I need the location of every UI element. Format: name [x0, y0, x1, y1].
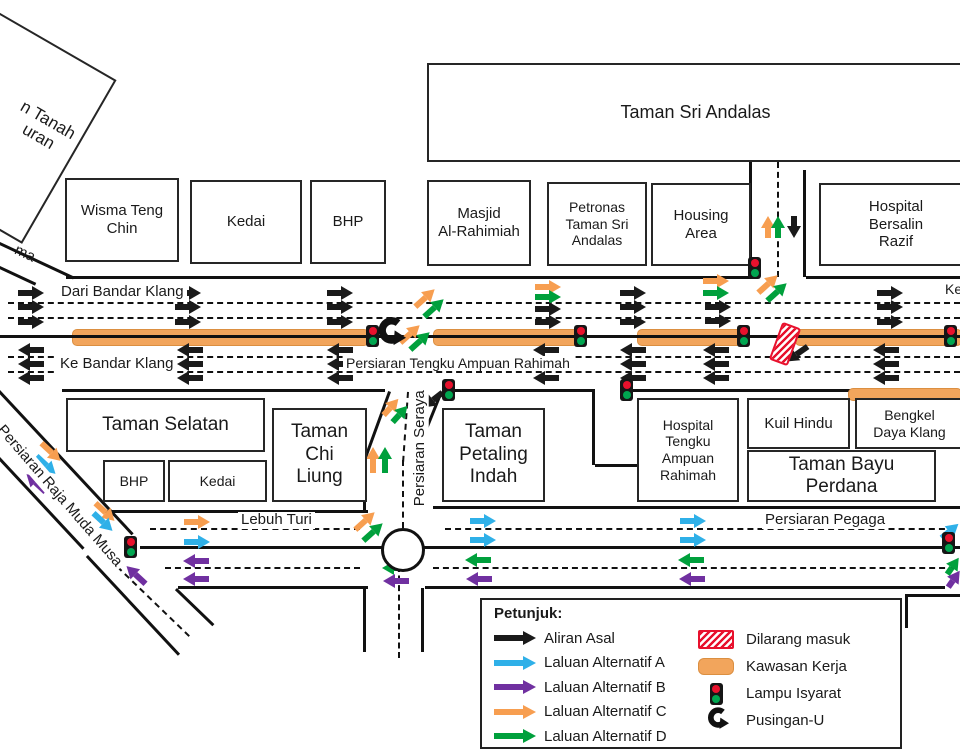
- arrow-shaft: [620, 304, 634, 310]
- building-housing-area: Housing Area: [651, 183, 751, 266]
- legend-flow-row: Laluan Alternatif D: [492, 724, 667, 749]
- legend-uturn-icon: [694, 708, 738, 734]
- flow-arrow-alternatif-a: [494, 655, 536, 671]
- arrow-head: [32, 300, 44, 314]
- traffic-light-icon: [442, 379, 455, 401]
- building-label: Taman Chi Liung: [291, 421, 348, 488]
- road-line: [595, 464, 637, 467]
- arrow-shaft: [632, 375, 646, 381]
- legend-flow-label: Laluan Alternatif A: [544, 654, 665, 671]
- arrow-shaft: [885, 361, 899, 367]
- legend-noentry-icon: [694, 627, 738, 653]
- arrow-shaft: [339, 375, 353, 381]
- building-label: Masjid Al-Rahimiah: [438, 205, 520, 240]
- arrow-shaft: [703, 290, 717, 296]
- flow-arrow-alternatif-c: [184, 514, 210, 530]
- flow-arrow-alternatif-d: [678, 552, 704, 568]
- legend-kawasan-icon: [694, 654, 738, 680]
- flow-arrow-alternatif-a: [470, 532, 496, 548]
- flow-arrow-aliran-asal: [327, 299, 353, 315]
- building-taman-sri-andalas: Taman Sri Andalas: [427, 63, 960, 162]
- arrow-shaft: [327, 304, 341, 310]
- road-line: [364, 588, 367, 652]
- flow-arrow-aliran-asal: [18, 370, 44, 386]
- road-line: [102, 510, 368, 513]
- arrow-shaft: [30, 347, 44, 353]
- flow-arrow-alternatif-b: [679, 571, 705, 587]
- building-label: BHP: [333, 213, 364, 231]
- building-hospital-bersalin-razif: Hospital Bersalin Razif: [819, 183, 960, 266]
- arrow-shaft: [30, 361, 44, 367]
- traffic-light-icon: [748, 257, 761, 279]
- road-label-lebuh-turi: Lebuh Turi: [238, 512, 315, 529]
- arrow-head: [18, 357, 30, 371]
- flow-arrow-aliran-asal: [535, 314, 561, 330]
- arrow-head: [873, 371, 885, 385]
- arrow-shaft: [885, 375, 899, 381]
- arrow-head: [873, 357, 885, 371]
- legend-box: Petunjuk: Aliran AsalLaluan Alternatif A…: [480, 598, 902, 749]
- arrow-head: [523, 680, 536, 694]
- arrow-shaft: [703, 278, 717, 284]
- traffic-light-icon: [710, 683, 723, 705]
- flow-arrow-aliran-asal: [620, 314, 646, 330]
- flow-arrow-aliran-asal: [327, 370, 353, 386]
- arrow-head: [465, 553, 477, 567]
- arrow-head: [533, 371, 545, 385]
- building-label: Taman Sri Andalas: [620, 102, 770, 123]
- arrow-head: [189, 315, 201, 329]
- legend-symbol-label: Pusingan-U: [746, 712, 824, 729]
- arrow-head: [523, 631, 536, 645]
- arrow-shaft: [877, 304, 891, 310]
- building-label: Housing Area: [673, 207, 728, 242]
- arrow-head: [694, 514, 706, 528]
- arrow-shaft: [705, 318, 719, 324]
- legend-symbol-row: Lampu Isyarat: [694, 680, 850, 707]
- building-taman-petaling-indah: Taman Petaling Indah: [442, 408, 545, 502]
- building-kuil-hindu: Kuil Hindu: [747, 398, 850, 449]
- no-entry-swatch: [698, 630, 734, 649]
- arrow-head: [523, 705, 536, 719]
- building-label: Wisma Teng Chin: [81, 202, 163, 237]
- legend-symbol-label: Kawasan Kerja: [746, 658, 847, 675]
- flow-arrow-alternatif-b: [183, 553, 209, 569]
- arrow-shaft: [189, 361, 203, 367]
- arrow-head: [177, 343, 189, 357]
- arrow-shaft: [370, 459, 376, 473]
- flow-arrow-alternatif-b: [494, 679, 536, 695]
- road-label-ke-fragment: Ke: [942, 282, 960, 297]
- arrow-shaft: [690, 557, 704, 563]
- traffic-light-icon: [942, 532, 955, 554]
- arrow-head: [198, 535, 210, 549]
- legend-flow-label: Laluan Alternatif D: [544, 728, 667, 745]
- arrow-shaft: [189, 347, 203, 353]
- flow-arrow-aliran-asal: [175, 299, 201, 315]
- flow-arrow-alternatif-b: [383, 573, 409, 589]
- arrow-head: [719, 314, 731, 328]
- road-line: [593, 390, 596, 465]
- road-line: [0, 335, 960, 338]
- arrow-head: [703, 371, 715, 385]
- flow-arrow-aliran-asal: [703, 370, 729, 386]
- road-line: [806, 276, 960, 279]
- road-label-dari-bandar-klang: Dari Bandar Klang: [58, 284, 187, 301]
- arrow-head: [183, 554, 195, 568]
- building-label: Petronas Taman Sri Andalas: [565, 199, 628, 249]
- flow-arrow-aliran-asal: [175, 314, 201, 330]
- legend-flow-row: Laluan Alternatif A: [492, 651, 667, 676]
- road-label-persiaran-pegaga: Persiaran Pegaga: [762, 512, 888, 529]
- arrow-head: [549, 315, 561, 329]
- flow-arrow-alternatif-c: [494, 704, 536, 720]
- building-label: Hospital Bersalin Razif: [869, 198, 923, 251]
- road-line: [62, 389, 385, 392]
- traffic-light-icon: [737, 325, 750, 347]
- arrow-head: [873, 343, 885, 357]
- flow-arrow-aliran-asal: [18, 299, 44, 315]
- road-line: [804, 170, 807, 277]
- flow-arrow-alternatif-d: [770, 216, 786, 238]
- arrow-head: [678, 553, 690, 567]
- arrow-head: [703, 357, 715, 371]
- building-taman-bayu-perdana: Taman Bayu Perdana: [747, 450, 936, 502]
- arrow-shaft: [175, 319, 189, 325]
- legend-flow-row: Aliran Asal: [492, 626, 667, 651]
- legend-symbol-row: Kawasan Kerja: [694, 653, 850, 680]
- arrow-head: [327, 357, 339, 371]
- arrow-shaft: [18, 304, 32, 310]
- arrow-shaft: [535, 294, 549, 300]
- road-line: [906, 594, 909, 628]
- legend-symbol-label: Lampu Isyarat: [746, 685, 841, 702]
- arrow-head: [378, 447, 392, 459]
- road-line: [8, 302, 960, 304]
- arrow-shaft: [478, 576, 492, 582]
- arrow-shaft: [327, 319, 341, 325]
- roundabout-circle: [381, 528, 425, 572]
- road-line: [402, 460, 404, 528]
- arrow-shaft: [691, 576, 705, 582]
- flow-arrow-alternatif-d: [465, 552, 491, 568]
- arrow-head: [891, 315, 903, 329]
- arrow-head: [679, 572, 691, 586]
- legend-flow-row: Laluan Alternatif C: [492, 700, 667, 725]
- arrow-shaft: [545, 375, 559, 381]
- arrow-shaft: [494, 635, 523, 641]
- arrow-head: [719, 300, 731, 314]
- arrow-shaft: [477, 557, 491, 563]
- arrow-head: [523, 656, 536, 670]
- building-taman-selatan: Taman Selatan: [66, 398, 265, 452]
- arrow-shaft: [470, 518, 484, 524]
- flow-arrow-alternatif-b: [183, 571, 209, 587]
- flow-arrow-aliran-asal: [18, 314, 44, 330]
- arrow-head: [32, 286, 44, 300]
- arrow-shaft: [632, 347, 646, 353]
- arrow-head: [703, 343, 715, 357]
- arrow-head: [189, 300, 201, 314]
- road-label-persiaran-seraya: Persiaran Seraya: [412, 380, 429, 516]
- arrow-shaft: [395, 578, 409, 584]
- arrow-shaft: [877, 290, 891, 296]
- legend-flow-column: Aliran AsalLaluan Alternatif ALaluan Alt…: [492, 626, 667, 749]
- flow-arrow-aliran-asal: [177, 370, 203, 386]
- arrow-head: [183, 572, 195, 586]
- arrow-shaft: [877, 319, 891, 325]
- arrow-head: [341, 315, 353, 329]
- flow-arrow-aliran-asal: [877, 314, 903, 330]
- u-turn-icon: [372, 314, 406, 353]
- arrow-head: [523, 729, 536, 743]
- building-label: Kuil Hindu: [764, 415, 832, 433]
- flow-arrow-alternatif-d: [377, 447, 393, 473]
- arrow-shaft: [494, 684, 523, 690]
- building-label: Bengkel Daya Klang: [873, 407, 945, 440]
- building-hospital-tengku-ampuan-rahimah: Hospital Tengku Ampuan Rahimah: [637, 398, 739, 502]
- flow-arrow-aliran-asal: [533, 370, 559, 386]
- arrow-shaft: [632, 361, 646, 367]
- arrow-head: [694, 533, 706, 547]
- flow-arrow-alternatif-b: [121, 560, 151, 589]
- legend-arrow-icon: [492, 726, 544, 746]
- flow-arrow-aliran-asal: [327, 314, 353, 330]
- arrow-head: [341, 300, 353, 314]
- flow-arrow-aliran-asal: [620, 299, 646, 315]
- arrow-head: [327, 343, 339, 357]
- arrow-head: [634, 300, 646, 314]
- arrow-shaft: [535, 319, 549, 325]
- arrow-head: [484, 533, 496, 547]
- arrow-head: [787, 226, 801, 238]
- flow-arrow-aliran-asal: [494, 630, 536, 646]
- arrow-shaft: [184, 539, 198, 545]
- arrow-shaft: [382, 459, 388, 473]
- building-kedai-south: Kedai: [168, 460, 267, 502]
- building-label: Taman Bayu Perdana: [789, 454, 895, 499]
- arrow-shaft: [494, 709, 523, 715]
- arrow-head: [484, 514, 496, 528]
- building-wisma-teng-chin: Wisma Teng Chin: [65, 178, 179, 262]
- arrow-shaft: [620, 319, 634, 325]
- building-kedai-north: Kedai: [190, 180, 302, 264]
- building-taman-chi-liung: Taman Chi Liung: [272, 408, 367, 502]
- building-petronas-taman-sri-andalas: Petronas Taman Sri Andalas: [547, 182, 647, 266]
- arrow-head: [634, 286, 646, 300]
- traffic-light-icon: [574, 325, 587, 347]
- arrow-head: [771, 216, 785, 228]
- road-line: [175, 588, 214, 626]
- flow-arrow-aliran-asal: [786, 216, 802, 238]
- flow-arrow-aliran-asal: [877, 299, 903, 315]
- arrow-head: [177, 371, 189, 385]
- arrow-shaft: [339, 347, 353, 353]
- building-label: BHP: [120, 473, 149, 490]
- legend-symbol-row: Dilarang masuk: [694, 626, 850, 653]
- legend-flow-label: Laluan Alternatif C: [544, 703, 667, 720]
- arrow-head: [341, 286, 353, 300]
- arrow-head: [717, 286, 729, 300]
- traffic-light-icon: [620, 379, 633, 401]
- arrow-shaft: [680, 537, 694, 543]
- building-label: Kedai: [200, 473, 236, 490]
- arrow-head: [18, 343, 30, 357]
- arrow-shaft: [494, 660, 523, 666]
- road-line: [0, 266, 36, 285]
- arrow-head: [891, 286, 903, 300]
- arrow-shaft: [184, 519, 198, 525]
- road-line: [422, 588, 425, 652]
- road-line: [908, 594, 960, 597]
- road-line: [445, 389, 595, 392]
- arrow-head: [327, 371, 339, 385]
- building-label: Taman Selatan: [102, 414, 229, 436]
- arrow-shaft: [494, 733, 523, 739]
- arrow-head: [620, 343, 632, 357]
- arrow-shaft: [680, 518, 694, 524]
- legend-title: Petunjuk:: [494, 605, 562, 622]
- traffic-diversion-map: Dari Bandar KlangKe Bandar KlangPersiara…: [0, 0, 960, 750]
- work-zone-bar: [72, 329, 369, 346]
- legend-flow-row: Laluan Alternatif B: [492, 675, 667, 700]
- work-zone-swatch: [698, 658, 734, 675]
- building-bengkel-daya-klang: Bengkel Daya Klang: [855, 398, 960, 449]
- building-bhp-south: BHP: [103, 460, 165, 502]
- road-line: [140, 546, 383, 549]
- arrow-head: [198, 515, 210, 529]
- arrow-shaft: [715, 361, 729, 367]
- arrow-shaft: [18, 319, 32, 325]
- arrow-head: [466, 572, 478, 586]
- legend-light-icon: [694, 681, 738, 707]
- building-label: Taman Petaling Indah: [459, 421, 528, 488]
- arrow-head: [18, 371, 30, 385]
- arrow-shaft: [189, 375, 203, 381]
- u-turn-icon: [703, 705, 729, 736]
- road-label-persiaran-tengku-ampuan-rahimah: Persiaran Tengku Ampuan Rahimah: [343, 356, 573, 371]
- arrow-head: [620, 357, 632, 371]
- building-bhp-north: BHP: [310, 180, 386, 264]
- arrow-shaft: [535, 306, 549, 312]
- road-label-road-name-fragment-ma: ma: [9, 241, 40, 267]
- road-line: [66, 276, 752, 279]
- arrow-shaft: [715, 347, 729, 353]
- building-masjid-al-rahimiah: Masjid Al-Rahimiah: [427, 180, 531, 266]
- legend-arrow-icon: [492, 677, 544, 697]
- arrow-shaft: [791, 216, 797, 226]
- arrow-head: [177, 357, 189, 371]
- arrow-shaft: [705, 304, 719, 310]
- arrow-head: [891, 300, 903, 314]
- traffic-light-icon: [124, 536, 137, 558]
- building-label: Kedai: [227, 213, 265, 231]
- road-line: [8, 317, 960, 319]
- arrow-head: [32, 315, 44, 329]
- arrow-head: [383, 574, 395, 588]
- arrow-shaft: [545, 347, 559, 353]
- flow-arrow-aliran-asal: [873, 370, 899, 386]
- traffic-light-icon: [944, 325, 957, 347]
- flow-arrow-aliran-asal: [705, 313, 731, 329]
- arrow-head: [189, 286, 201, 300]
- arrow-shaft: [327, 290, 341, 296]
- arrow-shaft: [18, 290, 32, 296]
- flow-arrow-alternatif-a: [184, 534, 210, 550]
- arrow-head: [634, 315, 646, 329]
- flow-arrow-alternatif-a: [680, 532, 706, 548]
- building-label: Hospital Tengku Ampuan Rahimah: [660, 417, 716, 483]
- arrow-shaft: [470, 537, 484, 543]
- flow-arrow-alternatif-d: [494, 728, 536, 744]
- legend-arrow-icon: [492, 653, 544, 673]
- road-line: [433, 506, 960, 509]
- arrow-shaft: [775, 228, 781, 238]
- legend-arrow-icon: [492, 628, 544, 648]
- arrow-shaft: [715, 375, 729, 381]
- arrow-shaft: [133, 572, 147, 586]
- legend-flow-label: Aliran Asal: [544, 630, 615, 647]
- flow-arrow-alternatif-b: [466, 571, 492, 587]
- legend-flow-label: Laluan Alternatif B: [544, 679, 666, 696]
- legend-arrow-icon: [492, 702, 544, 722]
- legend-symbol-column: Dilarang masukKawasan KerjaLampu Isyarat…: [694, 626, 850, 734]
- arrow-shaft: [30, 375, 44, 381]
- arrow-shaft: [885, 347, 899, 353]
- legend-symbol-row: Pusingan-U: [694, 707, 850, 734]
- road-label-ke-bandar-klang: Ke Bandar Klang: [57, 356, 176, 373]
- legend-symbol-label: Dilarang masuk: [746, 631, 850, 648]
- arrow-shaft: [195, 576, 209, 582]
- arrow-shaft: [620, 290, 634, 296]
- flow-arrow-alternatif-a: [470, 513, 496, 529]
- arrow-shaft: [195, 558, 209, 564]
- flow-arrow-alternatif-a: [680, 513, 706, 529]
- arrow-shaft: [175, 304, 189, 310]
